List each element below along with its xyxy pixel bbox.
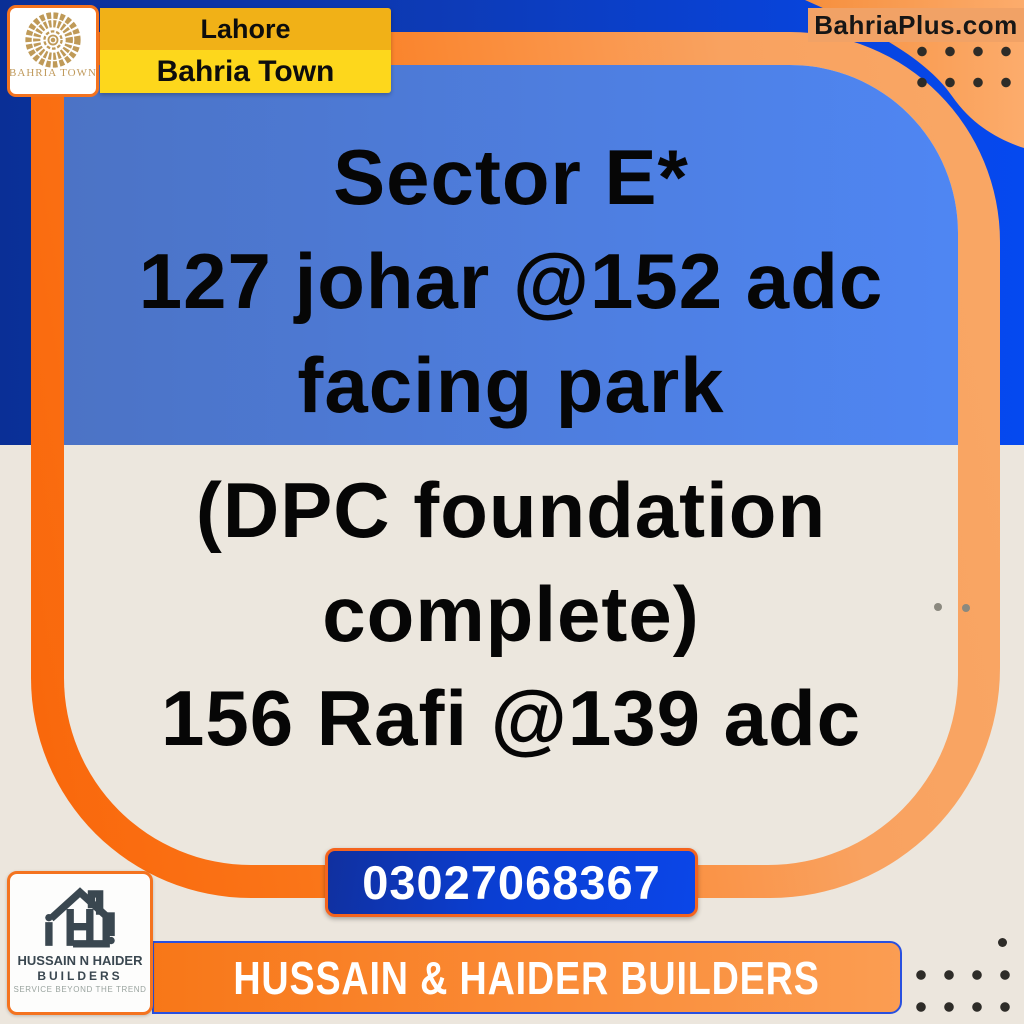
listing-line: complete) bbox=[64, 562, 958, 666]
dot-accent bbox=[998, 938, 1007, 947]
builder-name-line1: HUSSAIN N HAIDER bbox=[18, 953, 143, 968]
phone-number: 03027068367 bbox=[362, 855, 661, 910]
dot-grid-top-right bbox=[908, 36, 1022, 98]
location-community: Bahria Town bbox=[157, 55, 335, 89]
house-icon bbox=[38, 880, 122, 952]
listing-line: facing park bbox=[64, 333, 958, 437]
listing-line: Sector E* bbox=[64, 125, 958, 229]
dot-grid-bottom-right bbox=[907, 959, 1021, 1023]
location-community-row: Bahria Town bbox=[100, 50, 391, 93]
listing-line: 127 johar @152 adc bbox=[64, 229, 958, 333]
listing-line: (DPC foundation bbox=[64, 458, 958, 562]
dot-accent bbox=[962, 604, 970, 612]
builder-name-line2: BUILDERS bbox=[37, 969, 122, 983]
phone-button[interactable]: 03027068367 bbox=[325, 848, 698, 917]
bahria-town-logo: BAHRIA TOWN bbox=[7, 5, 99, 97]
listing-text-beige: (DPC foundation complete) 156 Rafi @139 … bbox=[64, 458, 958, 770]
builder-banner-text: HUSSAIN & HAIDER BUILDERS bbox=[234, 951, 820, 1005]
location-city: Lahore bbox=[200, 14, 290, 45]
bahria-medallion-icon bbox=[24, 11, 82, 69]
builder-logo: HUSSAIN N HAIDER BUILDERS SERVICE BEYOND… bbox=[7, 871, 153, 1015]
builder-banner: HUSSAIN & HAIDER BUILDERS bbox=[152, 941, 902, 1014]
location-city-row: Lahore bbox=[100, 8, 391, 50]
listing-text-blue: Sector E* 127 johar @152 adc facing park bbox=[64, 125, 958, 437]
location-banner: Lahore Bahria Town bbox=[100, 8, 391, 93]
content-panel: Sector E* 127 johar @152 adc facing park… bbox=[64, 65, 958, 865]
builder-tagline: SERVICE BEYOND THE TREND bbox=[13, 985, 146, 994]
flyer: Sector E* 127 johar @152 adc facing park… bbox=[0, 0, 1024, 1024]
dot-accent bbox=[934, 603, 942, 611]
listing-line: 156 Rafi @139 adc bbox=[64, 666, 958, 770]
bahria-logo-text: BAHRIA TOWN bbox=[9, 67, 97, 79]
